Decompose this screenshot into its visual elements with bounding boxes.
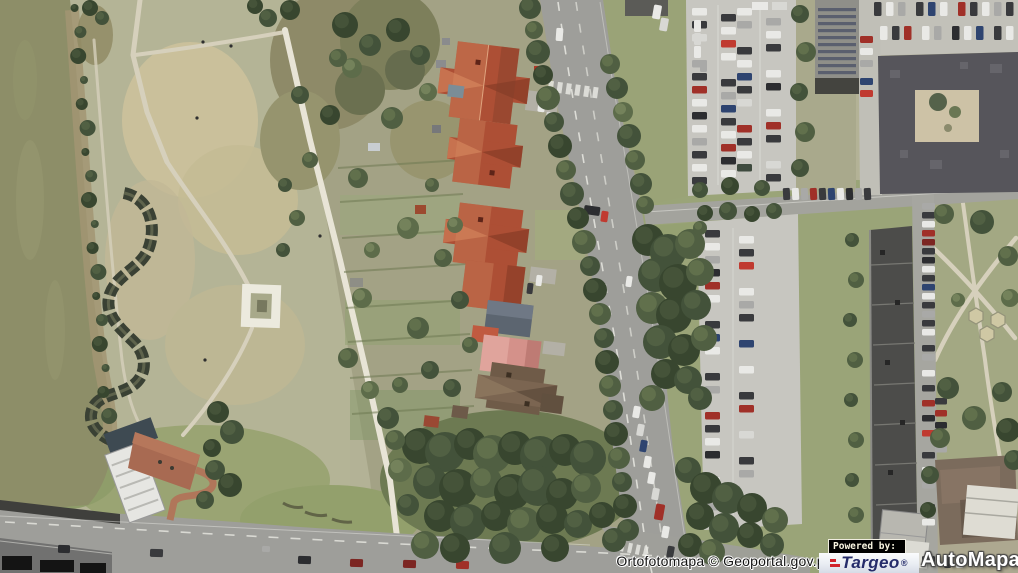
- square-monument: [245, 288, 276, 323]
- targeo-mark-icon: [830, 558, 840, 569]
- map-attribution: Ortofotomapa © Geoportal.gov.pl: [616, 553, 828, 569]
- courtyard-building: [878, 52, 1018, 194]
- automapa-logo-text: AutoMapa: [921, 549, 1018, 571]
- targeo-registered-mark: ®: [901, 558, 908, 568]
- courtyard: [915, 90, 979, 142]
- targeo-logo-text: Targeo: [841, 553, 899, 573]
- map-viewport[interactable]: Ortofotomapa © Geoportal.gov.pl Powered …: [0, 0, 1018, 573]
- targeo-logo[interactable]: Targeo ®: [819, 553, 919, 573]
- automapa-logo[interactable]: AutoMapa®: [921, 549, 1018, 572]
- powered-by-label: Powered by:: [828, 539, 906, 553]
- brown-roof-cluster: [935, 455, 1018, 545]
- aerial-imagery: [0, 0, 1018, 573]
- solar-roof-building: [815, 0, 859, 94]
